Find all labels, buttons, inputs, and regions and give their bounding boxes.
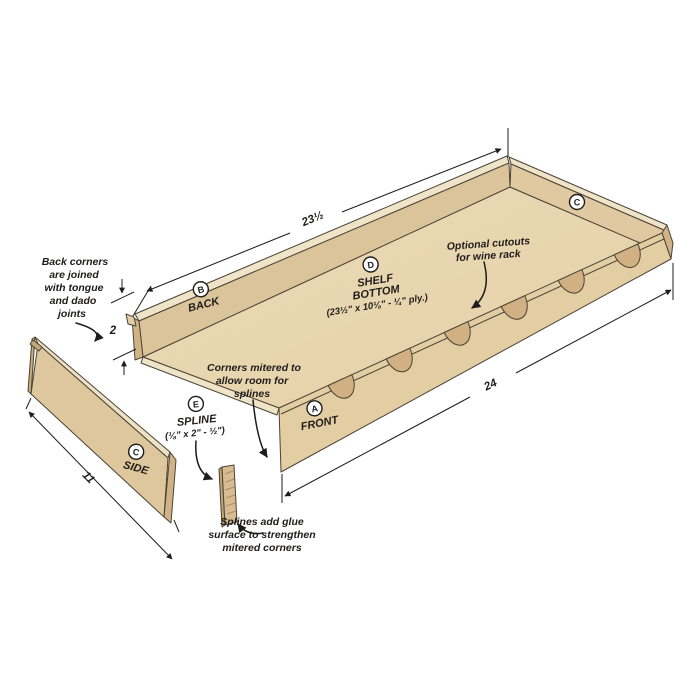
part-dims-spline: (⅛" x 2" - ½") — [165, 425, 226, 442]
dimension-front-length: 24 — [481, 377, 499, 394]
leader-spline-arrow — [196, 441, 212, 479]
dimension-side-length: 11 — [80, 469, 97, 486]
annotation-line: are joined — [49, 269, 99, 281]
label-spline: E SPLINE (⅛" x 2" - ½") — [161, 394, 225, 443]
annotation-line: surface to strengthen — [208, 529, 315, 541]
annotation-line: mitered corners — [222, 542, 302, 554]
annotation-line: joints — [56, 308, 86, 320]
extension-tick — [174, 520, 179, 532]
annotation-splines-glue: Splines add glue surface to strengthen m… — [208, 516, 315, 554]
back-board-tongue — [126, 314, 136, 326]
annotation-line: and dado — [50, 295, 97, 307]
part-letter-e: E — [192, 399, 199, 410]
annotation-back-corners: Back corners are joined with tongue and … — [42, 256, 109, 320]
extension-tick — [111, 292, 134, 303]
annotation-line: Back corners — [42, 256, 109, 268]
annotation-line: Corners mitered to — [207, 362, 302, 374]
annotation-line: with tongue — [45, 282, 104, 294]
label-side-right: C — [570, 195, 585, 210]
diagram-canvas: 23½ 24 11 2 B BACK A FRONT C — [0, 0, 700, 700]
woodworking-diagram: 23½ 24 11 2 B BACK A FRONT C — [0, 0, 700, 700]
extension-tick — [26, 398, 31, 409]
annotation-line: splines — [234, 388, 270, 400]
dimension-back-height: 2 — [109, 325, 117, 337]
leader-back-corners-arrow — [76, 323, 97, 341]
dimension-back-length: 23½ — [299, 209, 325, 229]
annotation-line: allow room for — [216, 375, 289, 387]
extension-tick — [113, 349, 136, 360]
annotation-line: Splines add glue — [220, 516, 304, 528]
dimension-2-back-height: 2 — [109, 279, 136, 375]
part-letter-c-right: C — [574, 198, 581, 208]
side-piece-face — [31, 344, 168, 517]
